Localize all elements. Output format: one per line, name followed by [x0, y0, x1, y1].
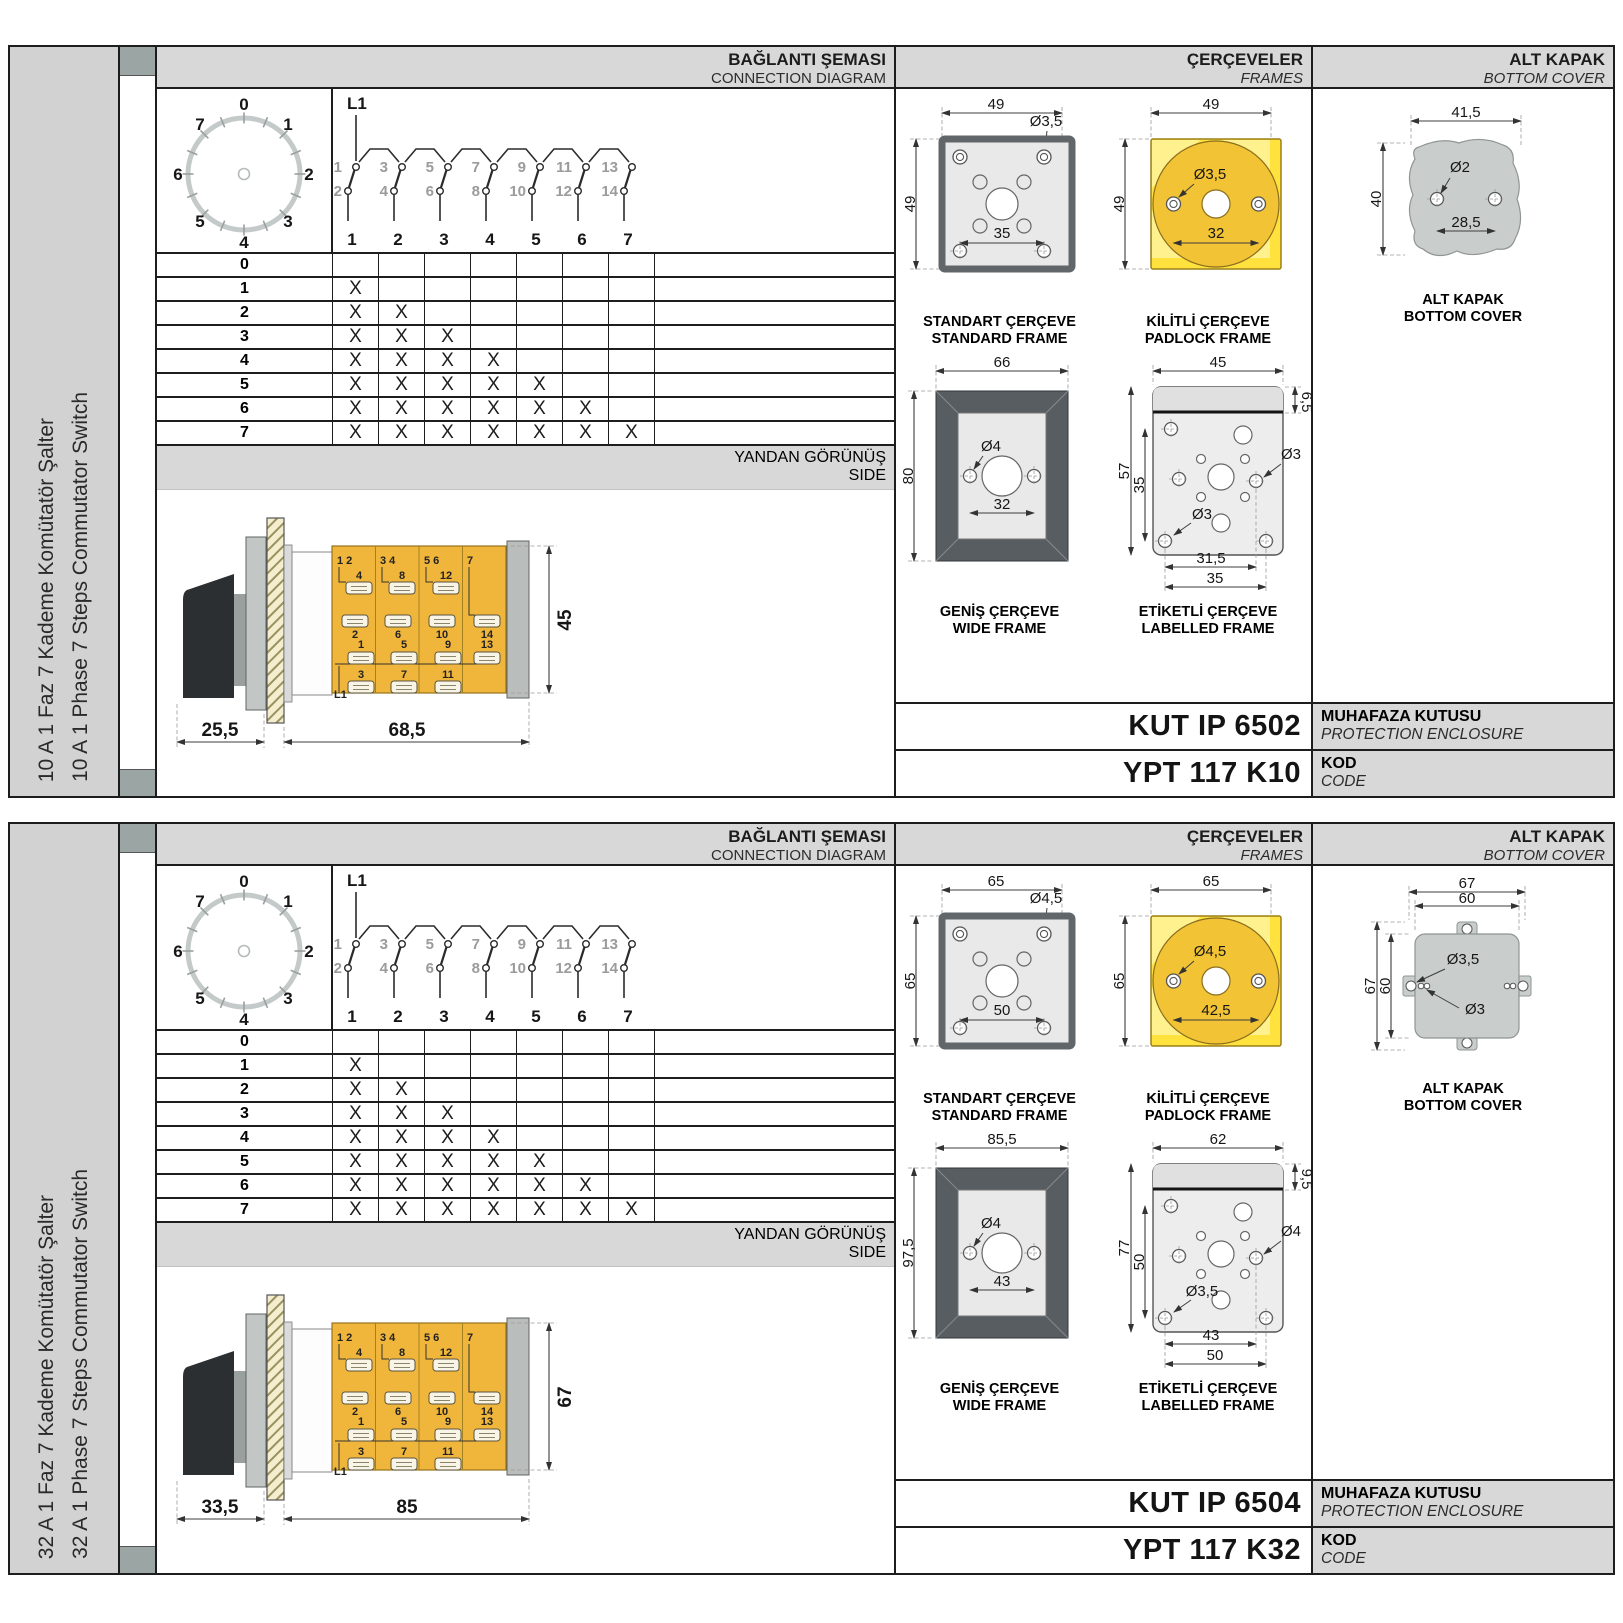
svg-text:1: 1 [334, 159, 342, 176]
svg-text:5: 5 [531, 230, 540, 249]
connection-schematic: L1 [333, 866, 894, 1029]
side-view-header: YANDAN GÖRÜNÜŞ SIDE [157, 1223, 894, 1267]
svg-text:Ø4,5: Ø4,5 [1030, 890, 1063, 907]
row-label: 3 [157, 1103, 333, 1125]
svg-text:3 4: 3 4 [380, 1332, 396, 1344]
svg-text:Ø4: Ø4 [981, 438, 1001, 455]
accent-square-bottom [120, 1546, 155, 1573]
svg-text:3: 3 [283, 989, 292, 1008]
code-label: KODCODE [1313, 751, 1613, 796]
svg-text:28,5: 28,5 [1451, 214, 1480, 231]
svg-text:50: 50 [1207, 1347, 1224, 1364]
table-row: 2XX [157, 1079, 894, 1103]
svg-text:2: 2 [304, 165, 313, 184]
side-title-en: SIDE [157, 1244, 886, 1262]
table-row: 5XXXXX [157, 374, 894, 398]
svg-text:7: 7 [467, 1332, 473, 1344]
row-label: 0 [157, 254, 333, 276]
dim-body-depth: 85 [396, 1497, 418, 1518]
cover-title-en: BOTTOM COVER [1313, 847, 1605, 864]
schematic-figure: L1 [333, 89, 894, 252]
connection-title-tr: BAĞLANTI ŞEMASI [157, 827, 886, 847]
dim-front-depth: 25,5 [202, 720, 239, 741]
svg-text:6: 6 [173, 942, 182, 961]
connection-column: BAĞLANTI ŞEMASI CONNECTION DIAGRAM 01234… [157, 47, 894, 796]
svg-text:80: 80 [900, 467, 917, 484]
wide-frame-figure: 85,5 97,5 Ø4 43 GENİŞ ÇERÇEVEWIDE FRAM [896, 1128, 1103, 1416]
enclosure-label: MUHAFAZA KUTUSUPROTECTION ENCLOSURE [1313, 1481, 1613, 1526]
svg-text:11: 11 [556, 936, 572, 953]
svg-text:43: 43 [1203, 1327, 1220, 1344]
svg-text:2: 2 [304, 942, 313, 961]
svg-text:7: 7 [472, 159, 480, 176]
side-view-drawing: 1 2 4 2 1 3 L1 3 4 8 6 5 7 [157, 1267, 894, 1545]
step-contact-table: 0 1X 2XX 3XXX 4XXXX 5XXXXX 6XXXXXX 7XXXX… [157, 254, 894, 446]
connection-schematic: L1 [333, 89, 894, 252]
switch-dial-figure: 01234567 [157, 89, 333, 252]
frames-title-en: FRAMES [896, 847, 1303, 864]
frames-title-tr: ÇERÇEVELER [896, 50, 1303, 70]
svg-text:Ø3: Ø3 [1192, 506, 1212, 523]
svg-text:6: 6 [173, 165, 182, 184]
svg-text:L1: L1 [334, 689, 347, 701]
connection-header: BAĞLANTI ŞEMASI CONNECTION DIAGRAM [157, 824, 894, 866]
schematic-figure: L1 [333, 866, 894, 1029]
padlock-frame-figure: 49 49 Ø3,5 32 KİLİTLİ ÇERÇEVEPADLOCK F [1105, 93, 1312, 349]
svg-text:Ø4: Ø4 [1281, 1223, 1301, 1240]
svg-text:1 2: 1 2 [337, 555, 352, 567]
svg-text:1: 1 [358, 639, 364, 651]
connection-title-en: CONNECTION DIAGRAM [157, 70, 886, 87]
svg-text:35: 35 [994, 225, 1011, 242]
svg-text:11: 11 [442, 669, 454, 681]
svg-text:50: 50 [994, 1002, 1011, 1019]
cover-title-tr: ALT KAPAK [1313, 827, 1605, 847]
row-label: 6 [157, 1175, 333, 1197]
svg-text:3: 3 [283, 212, 292, 231]
row-label: 7 [157, 1199, 333, 1221]
svg-text:65: 65 [1202, 873, 1219, 890]
connection-column: BAĞLANTI ŞEMASI CONNECTION DIAGRAM 01234… [157, 824, 894, 1573]
svg-text:7: 7 [401, 1446, 407, 1458]
row-label: 1 [157, 1055, 333, 1077]
svg-text:9: 9 [445, 639, 451, 651]
svg-text:Ø3,5: Ø3,5 [1186, 1283, 1219, 1300]
enclosure-code: KUT IP 6502 [896, 704, 1313, 749]
svg-text:5: 5 [195, 989, 204, 1008]
knob-handle [183, 574, 234, 698]
switch-dial: 01234567 [157, 866, 331, 1029]
svg-text:35: 35 [1131, 476, 1148, 493]
svg-text:50: 50 [1131, 1253, 1148, 1270]
svg-text:49: 49 [1111, 196, 1128, 213]
switch-contacts [345, 941, 636, 998]
frames-title-en: FRAMES [896, 70, 1303, 87]
enclosure-label: MUHAFAZA KUTUSUPROTECTION ENCLOSURE [1313, 704, 1613, 749]
svg-text:13: 13 [601, 159, 618, 176]
enclosure-code: KUT IP 6504 [896, 1481, 1313, 1526]
switch-dial: 01234567 [157, 89, 331, 252]
table-row: 2XX [157, 302, 894, 326]
svg-text:65: 65 [988, 873, 1005, 890]
svg-text:32: 32 [994, 496, 1011, 513]
svg-text:12: 12 [440, 570, 452, 582]
wide-frame-figure: 66 80 Ø4 32 GENİŞ ÇERÇEVEWIDE FRAME [896, 351, 1103, 639]
svg-text:3: 3 [380, 159, 388, 176]
code-row: YPT 117 K32 KODCODE [896, 1526, 1613, 1573]
table-row: 1X [157, 278, 894, 302]
row-label: 5 [157, 1151, 333, 1173]
svg-text:1: 1 [347, 1007, 356, 1026]
knob-handle [183, 1351, 234, 1475]
accent-strip [120, 824, 157, 1573]
side-view-figure: 1 2 4 2 1 3 L1 3 4 8 6 5 7 [157, 1267, 894, 1573]
svg-text:7: 7 [623, 1007, 632, 1026]
connection-header: BAĞLANTI ŞEMASI CONNECTION DIAGRAM [157, 47, 894, 89]
bottom-cover-figure: 41,5 40 Ø2 28,5 ALT KAPAKBOTTOM COVER [1313, 89, 1613, 702]
svg-text:8: 8 [472, 183, 480, 200]
svg-text:3: 3 [358, 669, 364, 681]
product-title-en: 10 A 1 Phase 7 Steps Commutator Switch [69, 392, 93, 782]
table-row: 0 [157, 254, 894, 278]
mounting-plate [267, 518, 284, 723]
product-panel-32a: 32 A 1 Faz 7 Kademe Komütatör Şalter 32 … [8, 822, 1615, 1575]
l1-label: L1 [347, 871, 367, 890]
svg-text:41,5: 41,5 [1451, 104, 1480, 121]
frames-title-tr: ÇERÇEVELER [896, 827, 1303, 847]
product-title-en: 32 A 1 Phase 7 Steps Commutator Switch [69, 1169, 93, 1559]
svg-text:4: 4 [485, 230, 495, 249]
svg-text:4: 4 [356, 570, 363, 582]
svg-text:Ø4: Ø4 [981, 1215, 1001, 1232]
cover-header: ALT KAPAK BOTTOM COVER [1313, 47, 1613, 89]
side-title-en: SIDE [157, 467, 886, 485]
svg-text:5 6: 5 6 [424, 1332, 439, 1344]
svg-text:5: 5 [426, 936, 434, 953]
svg-text:4: 4 [239, 1010, 249, 1029]
row-label: 2 [157, 302, 333, 324]
svg-text:4: 4 [356, 1347, 363, 1359]
l1-label: L1 [347, 94, 367, 113]
product-title-tr: 10 A 1 Faz 7 Kademe Komütatör Şalter [35, 418, 59, 782]
svg-text:12: 12 [555, 183, 572, 200]
svg-text:49: 49 [1202, 96, 1219, 113]
catalog-page: 10 A 1 Faz 7 Kademe Komütatör Şalter 10 … [0, 0, 1623, 1623]
end-cap [507, 1318, 529, 1475]
connection-title-en: CONNECTION DIAGRAM [157, 847, 886, 864]
svg-text:60: 60 [1459, 890, 1476, 907]
row-label: 1 [157, 278, 333, 300]
step-contact-table: 0 1X 2XX 3XXX 4XXXX 5XXXXX 6XXXXXX 7XXXX… [157, 1031, 894, 1223]
frames-column: ÇERÇEVELER FRAMES 65 Ø4,5 65 [896, 824, 1313, 1479]
svg-text:7: 7 [472, 936, 480, 953]
frames-header: ÇERÇEVELER FRAMES [896, 47, 1311, 89]
standard-frame-figure: 65 Ø4,5 65 50 STANDART ÇERÇEVESTANDARD F… [896, 870, 1103, 1126]
product-panel-10a: 10 A 1 Faz 7 Kademe Komütatör Şalter 10 … [8, 45, 1615, 798]
svg-text:49: 49 [902, 196, 919, 213]
svg-text:8: 8 [472, 960, 480, 977]
accent-strip [120, 47, 157, 796]
svg-text:4: 4 [485, 1007, 495, 1026]
switch-dial-figure: 01234567 [157, 866, 333, 1029]
accent-square-bottom [120, 769, 155, 796]
svg-text:Ø2: Ø2 [1450, 159, 1470, 176]
svg-text:3 4: 3 4 [380, 555, 396, 567]
svg-text:6: 6 [426, 960, 434, 977]
svg-text:12: 12 [440, 1347, 452, 1359]
svg-text:32: 32 [1207, 225, 1224, 242]
table-row: 7XXXXXXX [157, 1199, 894, 1223]
cover-column: ALT KAPAK BOTTOM COVER 41,5 40 Ø2 28,5 [1313, 47, 1613, 702]
column-numbers: 1234567 [347, 230, 632, 249]
svg-text:3: 3 [358, 1446, 364, 1458]
svg-text:49: 49 [988, 96, 1005, 113]
svg-text:7: 7 [195, 115, 204, 134]
sidebar-product-titles: 32 A 1 Faz 7 Kademe Komütatör Şalter 32 … [10, 824, 120, 1573]
svg-text:0: 0 [239, 872, 248, 891]
svg-text:3: 3 [439, 230, 448, 249]
table-row: 4XXXX [157, 1127, 894, 1151]
svg-text:9: 9 [518, 159, 526, 176]
row-label: 4 [157, 350, 333, 372]
standard-frame-figure: 49 Ø3,5 49 35 STANDART ÇERÇEVESTANDARD F… [896, 93, 1103, 349]
frames-column: ÇERÇEVELER FRAMES 49 Ø3,5 49 [896, 47, 1313, 702]
svg-text:6: 6 [577, 1007, 586, 1026]
svg-text:13: 13 [601, 936, 618, 953]
svg-text:14: 14 [601, 960, 618, 977]
svg-text:42,5: 42,5 [1201, 1002, 1230, 1019]
side-title-tr: YANDAN GÖRÜNÜŞ [157, 449, 886, 467]
svg-text:85,5: 85,5 [987, 1131, 1016, 1148]
switch-contacts [345, 164, 636, 221]
svg-text:6: 6 [426, 183, 434, 200]
svg-text:14: 14 [601, 183, 618, 200]
svg-text:4: 4 [239, 233, 249, 252]
cover-title-tr: ALT KAPAK [1313, 50, 1605, 70]
product-code: YPT 117 K32 [896, 1528, 1313, 1573]
svg-text:1: 1 [334, 936, 342, 953]
svg-text:1 2: 1 2 [337, 1332, 352, 1344]
svg-text:97,5: 97,5 [900, 1238, 917, 1267]
connection-title-tr: BAĞLANTI ŞEMASI [157, 50, 886, 70]
sidebar-product-titles: 10 A 1 Faz 7 Kademe Komütatör Şalter 10 … [10, 47, 120, 796]
svg-text:Ø3: Ø3 [1465, 1001, 1485, 1018]
svg-text:7: 7 [623, 230, 632, 249]
front-plate [246, 537, 266, 710]
svg-text:6,5: 6,5 [1298, 391, 1313, 412]
side-view-drawing: 1 2 4 2 1 3 L1 3 4 8 6 5 7 [157, 490, 894, 768]
accent-square-top [120, 47, 155, 76]
svg-text:5: 5 [426, 159, 434, 176]
cover-title-en: BOTTOM COVER [1313, 70, 1605, 87]
table-row: 4XXXX [157, 350, 894, 374]
svg-text:4: 4 [380, 960, 389, 977]
svg-text:60: 60 [1377, 978, 1394, 995]
table-row: 6XXXXXX [157, 398, 894, 422]
svg-text:2: 2 [393, 1007, 402, 1026]
svg-text:35: 35 [1207, 570, 1224, 587]
svg-text:10: 10 [509, 960, 526, 977]
row-label: 2 [157, 1079, 333, 1101]
svg-text:5: 5 [531, 1007, 540, 1026]
svg-text:1: 1 [283, 115, 292, 134]
frames-header: ÇERÇEVELER FRAMES [896, 824, 1311, 866]
svg-text:L1: L1 [334, 1466, 347, 1478]
svg-text:1: 1 [347, 230, 356, 249]
svg-text:8: 8 [399, 1347, 405, 1359]
side-view-header: YANDAN GÖRÜNÜŞ SIDE [157, 446, 894, 490]
accent-square-top [120, 824, 155, 853]
mounting-plate [267, 1295, 284, 1500]
product-title-tr: 32 A 1 Faz 7 Kademe Komütatör Şalter [35, 1195, 59, 1559]
dim-body-depth: 68,5 [389, 720, 426, 741]
row-label: 4 [157, 1127, 333, 1149]
svg-text:13: 13 [481, 1416, 493, 1428]
svg-text:0: 0 [239, 95, 248, 114]
svg-text:4: 4 [380, 183, 389, 200]
labelled-frame-figure: 45 6,5 57 35 Ø3 Ø3 [1103, 351, 1313, 639]
svg-text:7: 7 [401, 669, 407, 681]
svg-text:Ø3,5: Ø3,5 [1193, 166, 1226, 183]
svg-text:3: 3 [380, 936, 388, 953]
svg-text:43: 43 [994, 1273, 1011, 1290]
svg-text:31,5: 31,5 [1196, 550, 1225, 567]
table-row: 6XXXXXX [157, 1175, 894, 1199]
row-label: 7 [157, 422, 333, 444]
svg-text:6: 6 [577, 230, 586, 249]
svg-text:9: 9 [518, 936, 526, 953]
table-row: 1X [157, 1055, 894, 1079]
row-label: 5 [157, 374, 333, 396]
code-label: KODCODE [1313, 1528, 1613, 1573]
dim-front-depth: 33,5 [202, 1497, 239, 1518]
svg-text:1: 1 [283, 892, 292, 911]
svg-text:11: 11 [556, 159, 572, 176]
svg-text:3: 3 [439, 1007, 448, 1026]
padlock-frame-figure: 65 65 Ø4,5 42,5 KİLİTLİ ÇERÇEVEPADLOCK [1105, 870, 1312, 1126]
svg-text:Ø3: Ø3 [1281, 446, 1301, 463]
svg-text:11: 11 [442, 1446, 454, 1458]
end-cap [507, 541, 529, 698]
cover-column: ALT KAPAK BOTTOM COVER 67 60 67 60 [1313, 824, 1613, 1479]
svg-text:7: 7 [195, 892, 204, 911]
table-row: 7XXXXXXX [157, 422, 894, 446]
svg-text:5 6: 5 6 [424, 555, 439, 567]
svg-text:62: 62 [1210, 1131, 1227, 1148]
row-label: 6 [157, 398, 333, 420]
table-row: 3XXX [157, 1103, 894, 1127]
enclosure-row: KUT IP 6504 MUHAFAZA KUTUSUPROTECTION EN… [896, 1479, 1613, 1526]
svg-text:2: 2 [334, 960, 342, 977]
svg-text:65: 65 [902, 973, 919, 990]
enclosure-row: KUT IP 6502 MUHAFAZA KUTUSUPROTECTION EN… [896, 702, 1613, 749]
svg-text:7: 7 [467, 555, 473, 567]
svg-text:8: 8 [399, 570, 405, 582]
dim-body-height: 45 [555, 609, 576, 631]
labelled-frame-figure: 62 9,5 77 50 Ø3,5 Ø4 [1103, 1128, 1313, 1416]
column-numbers: 1234567 [347, 1007, 632, 1026]
front-plate [246, 1314, 266, 1487]
side-view-figure: 1 2 4 2 1 3 L1 3 4 8 6 5 7 [157, 490, 894, 796]
svg-text:66: 66 [994, 354, 1011, 371]
table-row: 5XXXXX [157, 1151, 894, 1175]
svg-text:12: 12 [555, 960, 572, 977]
table-row: 0 [157, 1031, 894, 1055]
row-label: 3 [157, 326, 333, 348]
svg-text:9,5: 9,5 [1298, 1168, 1313, 1189]
svg-text:1: 1 [358, 1416, 364, 1428]
table-row: 3XXX [157, 326, 894, 350]
svg-text:Ø3,5: Ø3,5 [1447, 951, 1480, 968]
svg-text:10: 10 [509, 183, 526, 200]
svg-text:9: 9 [445, 1416, 451, 1428]
svg-text:45: 45 [1210, 354, 1227, 371]
svg-text:13: 13 [481, 639, 493, 651]
svg-text:5: 5 [195, 212, 204, 231]
svg-text:Ø3,5: Ø3,5 [1030, 113, 1063, 130]
row-label: 0 [157, 1031, 333, 1053]
bottom-cover-figure: 67 60 67 60 Ø3,5 [1313, 866, 1613, 1479]
svg-text:40: 40 [1368, 191, 1385, 208]
svg-text:2: 2 [393, 230, 402, 249]
svg-text:Ø4,5: Ø4,5 [1193, 943, 1226, 960]
cover-header: ALT KAPAK BOTTOM COVER [1313, 824, 1613, 866]
code-row: YPT 117 K10 KODCODE [896, 749, 1613, 796]
svg-text:65: 65 [1111, 973, 1128, 990]
side-title-tr: YANDAN GÖRÜNÜŞ [157, 1226, 886, 1244]
svg-text:5: 5 [401, 639, 407, 651]
product-code: YPT 117 K10 [896, 751, 1313, 796]
svg-text:5: 5 [401, 1416, 407, 1428]
svg-text:2: 2 [334, 183, 342, 200]
dim-body-height: 67 [555, 1386, 576, 1407]
